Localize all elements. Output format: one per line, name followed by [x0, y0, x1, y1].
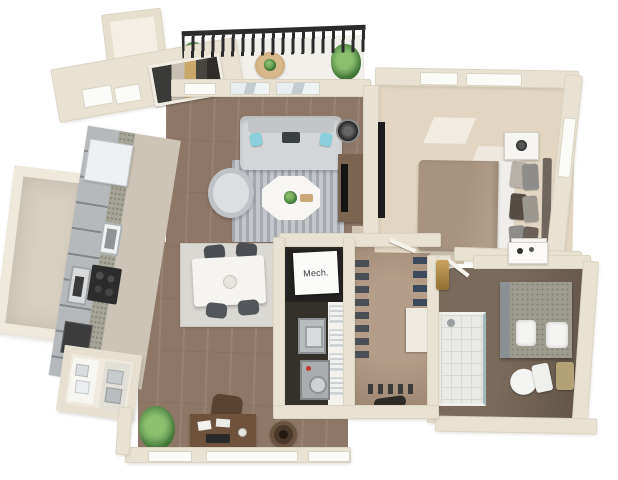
coffee-table-plant [284, 191, 297, 204]
bathroom-floor [438, 268, 588, 422]
nightstand-top [504, 132, 539, 160]
living-balcony-wall [172, 80, 370, 96]
stored-box [75, 364, 90, 378]
bottom-wall [126, 448, 350, 462]
vanity-sink-right [546, 322, 568, 348]
house-plant [139, 406, 175, 450]
hanging-clothes-right [413, 250, 428, 306]
bedroom-window-1 [420, 72, 458, 86]
shoes-row [368, 384, 416, 394]
double-vanity [500, 282, 572, 358]
floorplan-image: Mech. [0, 0, 618, 480]
ottoman [270, 421, 297, 448]
burner [105, 288, 114, 297]
closet-bottom-wall [274, 406, 438, 418]
refrigerator [84, 138, 134, 186]
coffee-table [262, 176, 320, 220]
sofa-pillow-left [249, 132, 263, 147]
mech-unit: Mech. [293, 251, 339, 295]
balcony-door-1 [230, 82, 270, 95]
laptop [206, 434, 230, 443]
pantry-bay-right [98, 361, 130, 412]
papers [197, 420, 211, 431]
sofa-tray [282, 132, 300, 143]
bed-pillow [522, 163, 539, 190]
floor-lamp [336, 119, 360, 143]
desk [190, 414, 256, 451]
bed-pillow [522, 195, 539, 222]
ottoman-center [279, 430, 288, 439]
sink-basin [104, 228, 117, 249]
bottom-window-1 [148, 451, 192, 462]
folded-towels [329, 305, 345, 323]
folded-towels [329, 329, 345, 347]
shower [438, 312, 486, 406]
entry-window-2 [113, 83, 142, 104]
laundry-closet-floor [284, 302, 346, 410]
media-wall [364, 86, 378, 244]
coffee-table-tray [300, 194, 313, 202]
walk-in-closet-floor [352, 246, 430, 410]
papers [216, 419, 231, 428]
vanity-sink-left [516, 320, 536, 346]
folded-towels [329, 353, 345, 371]
washer [298, 318, 326, 354]
burner [95, 271, 104, 280]
armchair [208, 168, 254, 218]
bedroom-window-2 [466, 73, 522, 87]
sofa-pillow-right [319, 132, 333, 147]
makeup-desk [508, 242, 548, 264]
desk-accessory [529, 247, 534, 252]
closet-shelf-return [406, 308, 430, 352]
mech-left-wall [274, 238, 284, 416]
table-centerpiece [223, 275, 238, 290]
sofa-back-cushions [248, 118, 334, 133]
stored-box [74, 380, 90, 395]
living-window-small [184, 83, 216, 95]
desk-mug [238, 428, 247, 437]
folded-towels [329, 377, 345, 395]
oven-window [72, 276, 84, 297]
bath-bottom-wall [436, 417, 596, 434]
balcony-door-2 [276, 82, 320, 95]
stored-box [104, 387, 122, 404]
dryer [300, 360, 330, 400]
burner [94, 285, 102, 293]
dryer-door [309, 376, 327, 394]
stored-box [106, 369, 124, 385]
gold-mirror [436, 260, 449, 290]
hanging-clothes-left [354, 258, 369, 358]
patio-table-plant [264, 59, 276, 71]
bottom-window-3 [308, 451, 350, 462]
bedroom-tv [378, 122, 385, 218]
washer-door [305, 326, 323, 348]
bottom-window-2 [206, 451, 298, 462]
desk-accessory [517, 248, 523, 254]
stove-cooktop [87, 264, 122, 304]
dining-chair [205, 302, 227, 319]
dryer-knob [306, 366, 311, 371]
closet-row-top-wall [280, 234, 440, 246]
toilet [507, 360, 557, 400]
entry-window-1 [81, 84, 114, 108]
sunlight-patch [423, 117, 476, 144]
tv-screen [341, 164, 348, 212]
shower-head [447, 319, 455, 327]
patio-table [255, 52, 285, 79]
laundry-closet-divider-wall [344, 238, 354, 416]
towel-basket [556, 362, 574, 390]
burner [107, 275, 115, 283]
kitchen-sink [98, 222, 123, 257]
table-lamp [516, 140, 527, 151]
dining-chair [237, 299, 259, 316]
mech-label: Mech. [293, 251, 339, 295]
sofa [240, 116, 342, 170]
tv-console [338, 154, 364, 222]
pantry-bay-left [67, 357, 99, 404]
